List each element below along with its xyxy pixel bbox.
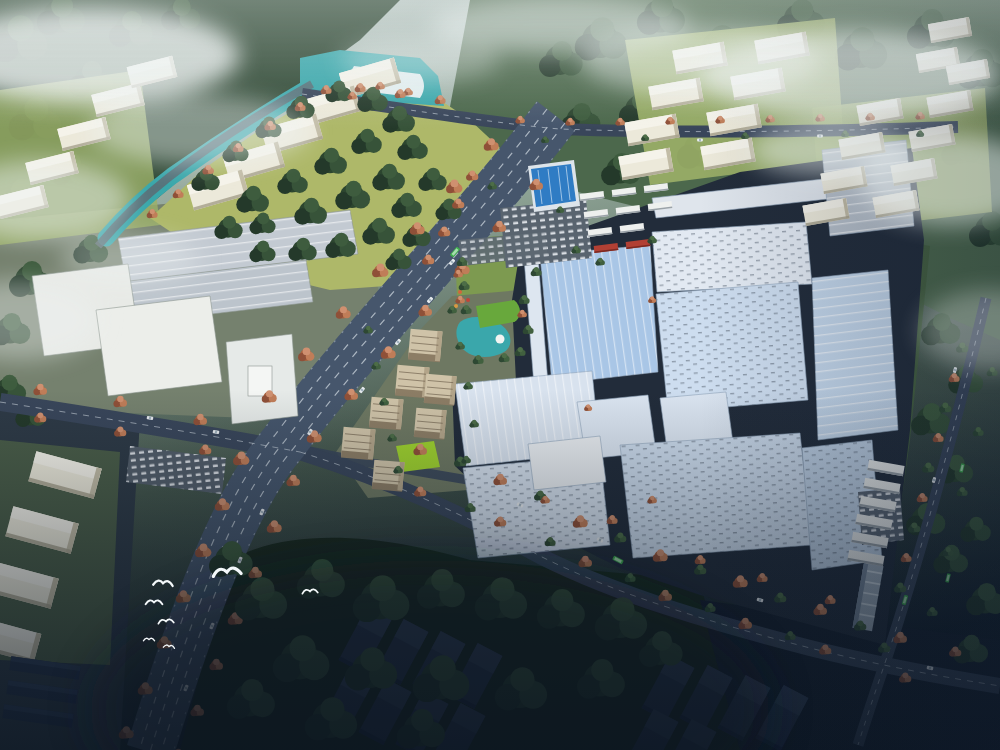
aerial-rendering-canvas [0,0,1000,750]
top-haze-veil [0,0,1000,130]
cloud [60,234,200,286]
cloud [750,124,910,176]
scene-svg [0,0,1000,750]
